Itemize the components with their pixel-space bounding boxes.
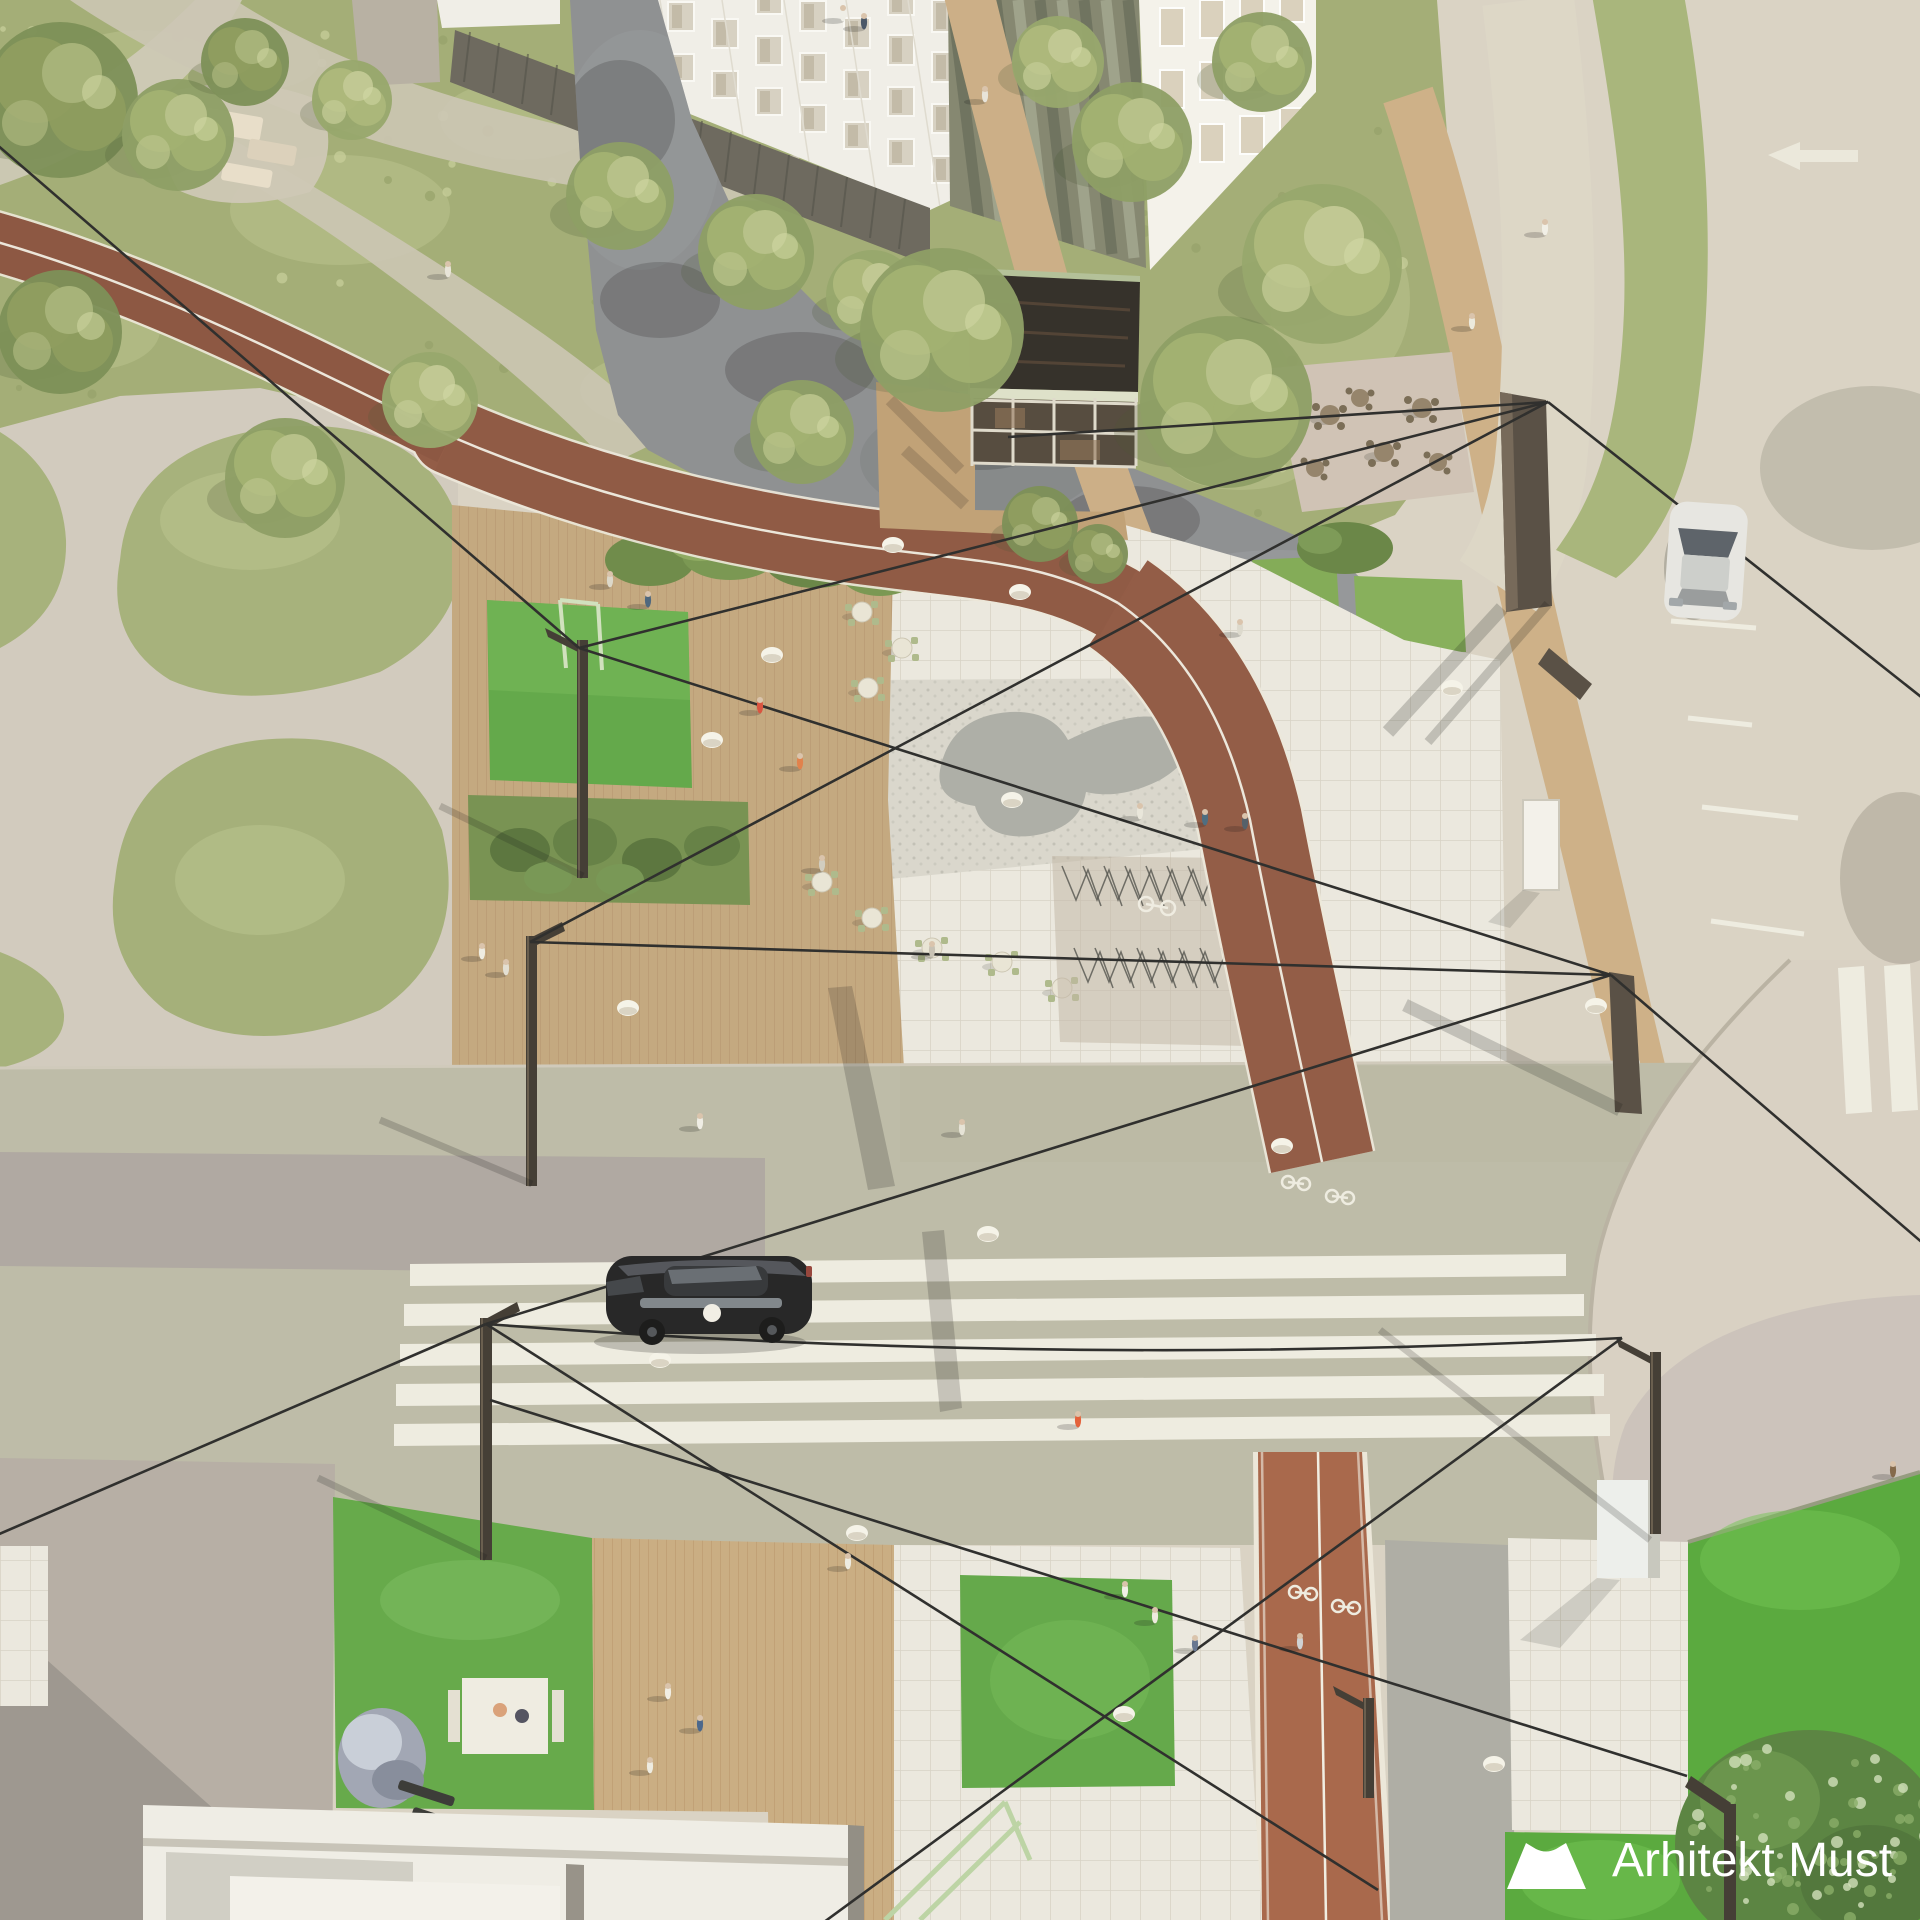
svg-text:Arhitekt Must: Arhitekt Must: [1612, 1834, 1892, 1887]
